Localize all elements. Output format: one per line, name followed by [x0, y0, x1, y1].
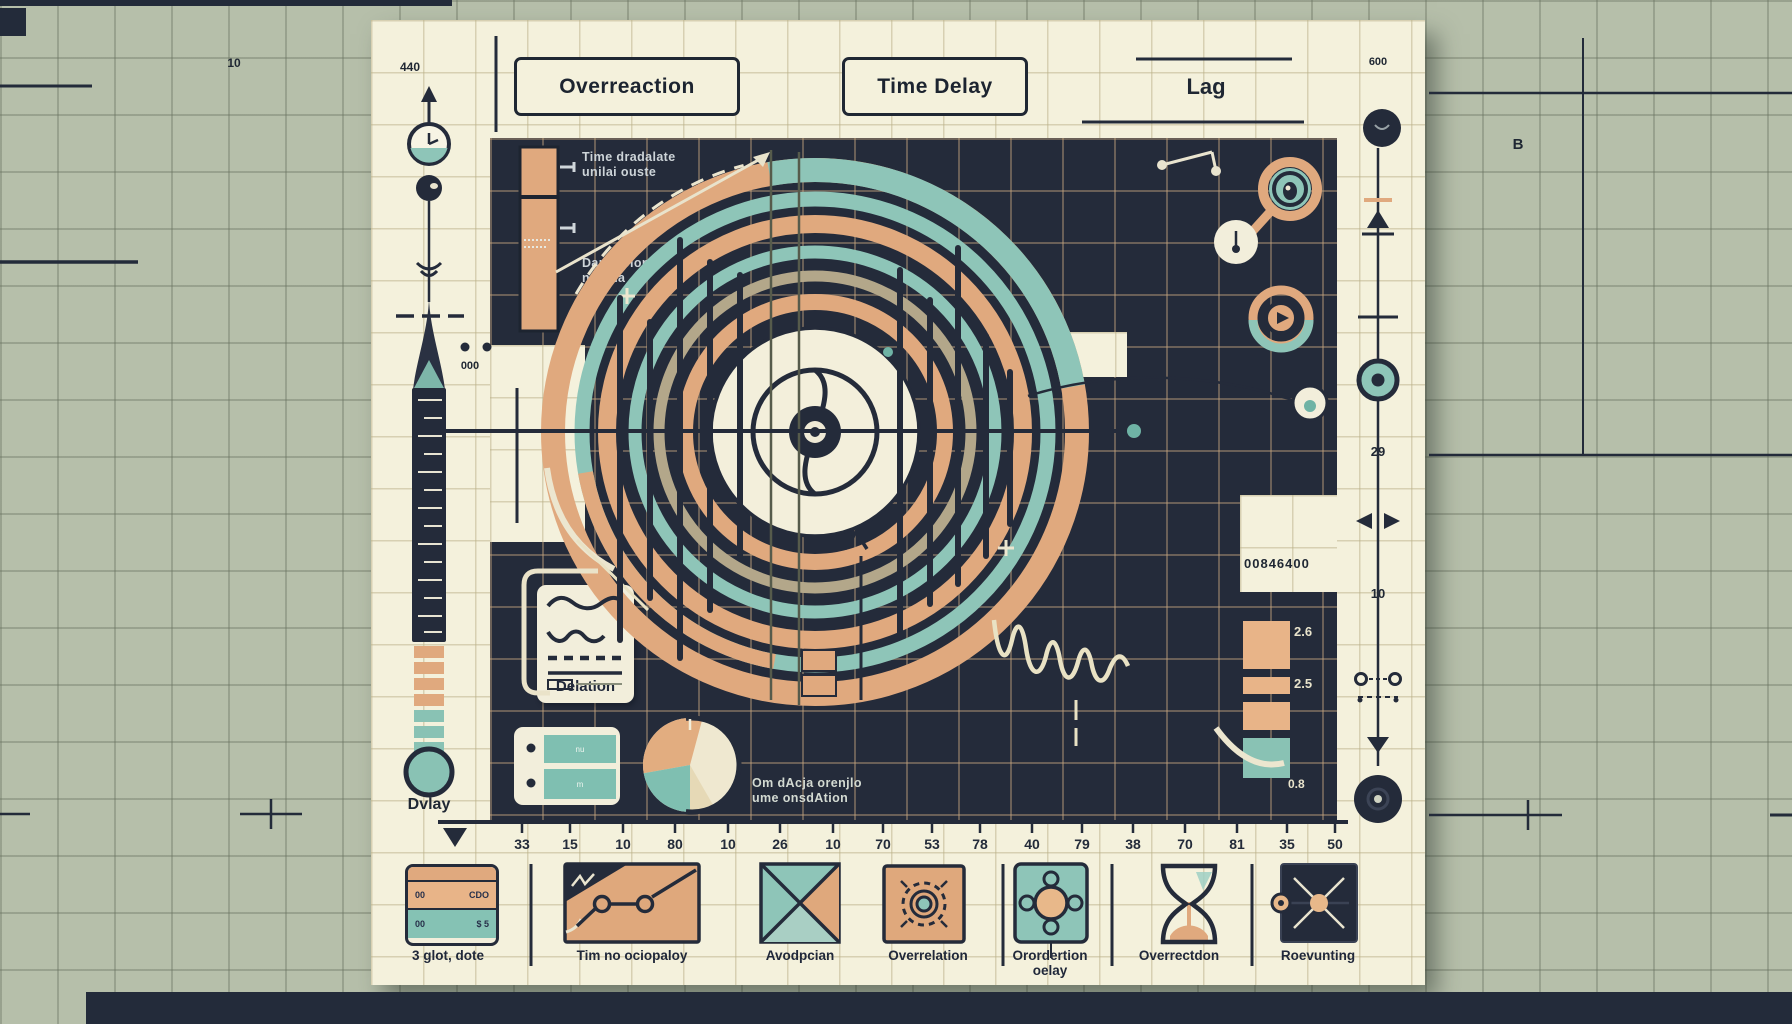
readout-box [1240, 495, 1337, 592]
axis-tick: 79 [1062, 836, 1102, 852]
axis-tick: 78 [960, 836, 1000, 852]
axis-tick: 70 [863, 836, 903, 852]
axis-tick: 81 [1217, 836, 1257, 852]
stack-value-top: 2.6 [1294, 624, 1312, 639]
bar-callout-bottom: Dan alolont nuiona [582, 256, 654, 286]
lag-label: Lag [1146, 74, 1266, 100]
legend-label-5: Orordertion oelay [975, 948, 1125, 978]
table-card-row2: m [544, 769, 616, 799]
legend-label-2: Tim no ociopaloy [557, 948, 707, 963]
stack-value-mid: 2.5 [1294, 676, 1312, 691]
axis-tick: 33 [502, 836, 542, 852]
axis-tick: 70 [1165, 836, 1205, 852]
mini-cell-o: O [802, 678, 836, 689]
panel-cutout-left [490, 345, 585, 542]
bar-dots-value: 000 [448, 360, 492, 372]
legend-table-icon: 00CDO 00$ 5 [405, 864, 499, 946]
delay-gauge-label: Dvlay [397, 796, 461, 814]
time-delay-box: Time Delay [842, 57, 1028, 116]
legend-label-7: Roevunting [1243, 948, 1393, 963]
right-ruler-value-bottom: 10 [1360, 586, 1396, 601]
legend-label-6: Overrectdon [1104, 948, 1254, 963]
header-right-tick-value: 600 [1356, 56, 1400, 68]
bottom-band [86, 992, 1792, 1024]
axis-tick: 40 [1012, 836, 1052, 852]
poster-canvas: 10 B 440 Overreaction Time Delay Lag 600… [0, 0, 1792, 1024]
right-ruler-value-top: 29 [1360, 444, 1396, 459]
readout-value: 00846400 [1244, 556, 1336, 571]
background-b-note: B [1504, 136, 1532, 153]
axis-tick: 26 [760, 836, 800, 852]
table-card-row1: nu [544, 735, 616, 763]
delation-card-label: Delation [537, 678, 634, 695]
overreaction-box: Overreaction [514, 57, 740, 116]
axis-tick: 10 [603, 836, 643, 852]
mini-cell-b: B [802, 652, 836, 663]
panel-cutout-top [1063, 332, 1127, 377]
legend-table-strip [408, 867, 496, 880]
axis-tick: 10 [708, 836, 748, 852]
header-left-tick-value: 440 [400, 60, 444, 74]
axis-tick: 80 [655, 836, 695, 852]
axis-tick: 38 [1113, 836, 1153, 852]
axis-tick: 35 [1267, 836, 1307, 852]
bar-callout-top: Time dradalate unilai ouste [582, 150, 676, 180]
legend-table-row1: 00CDO [408, 880, 496, 908]
axis-tick: 10 [813, 836, 853, 852]
axis-tick: 50 [1315, 836, 1355, 852]
axis-tick: 15 [550, 836, 590, 852]
pie-caption: Om dAcja orenjlo ume onsdAtion [752, 776, 862, 806]
stack-value-bottom: 0.8 [1288, 777, 1305, 791]
delation-card: Delation [537, 585, 634, 703]
chart-panel [490, 138, 1337, 820]
table-card: nu m [514, 727, 620, 805]
background-left-value: 10 [214, 56, 254, 70]
axis-tick: 53 [912, 836, 952, 852]
legend-table-row2: 00$ 5 [408, 908, 496, 938]
legend-label-1: 3 glot, dote [373, 948, 523, 963]
